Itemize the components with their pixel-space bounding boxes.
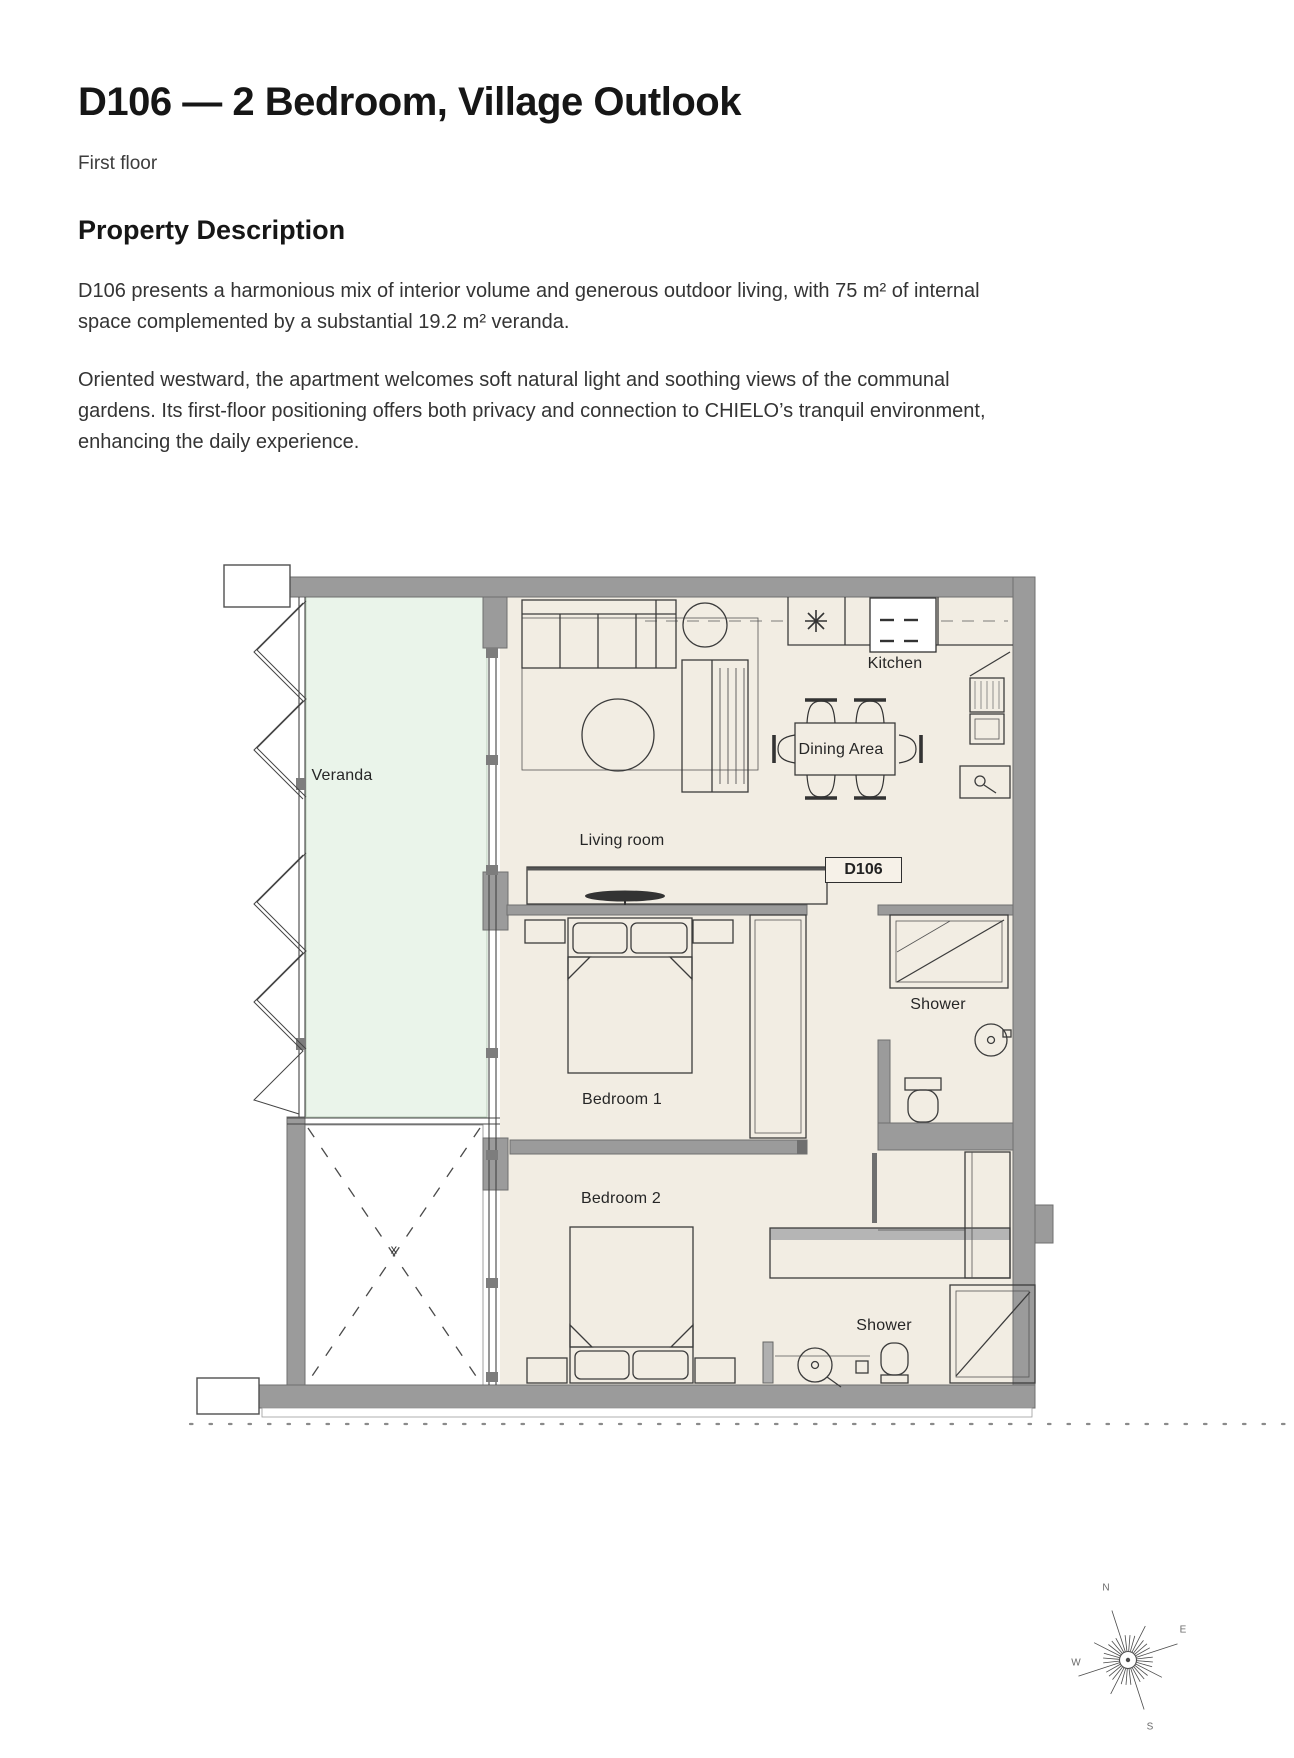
compass-rose — [1079, 1611, 1178, 1710]
floor-plan-drawing — [0, 0, 1294, 1758]
structural-columns — [197, 565, 290, 1414]
compass-n-label: N — [1102, 1583, 1109, 1594]
room-label-dining-area: Dining Area — [799, 741, 884, 759]
room-label-bedroom-2: Bedroom 2 — [581, 1190, 661, 1208]
page: D106 — 2 Bedroom, Village Outlook First … — [0, 0, 1294, 1758]
compass-s-label: S — [1147, 1722, 1154, 1733]
room-label-shower-2: Shower — [856, 1317, 911, 1335]
room-label-kitchen: Kitchen — [868, 655, 923, 673]
tv-icon — [585, 891, 665, 902]
stove-icon — [870, 598, 936, 652]
open-window-icon — [254, 601, 306, 1114]
floor-areas — [305, 597, 1013, 1385]
floor-plan: Veranda Living room Kitchen Dining Area … — [0, 0, 1294, 1758]
room-label-living-room: Living room — [580, 832, 665, 850]
unit-number-badge: D106 — [825, 857, 902, 883]
compass-w-label: W — [1071, 1658, 1080, 1669]
room-label-veranda: Veranda — [311, 767, 372, 785]
room-label-bedroom-1: Bedroom 1 — [582, 1091, 662, 1109]
void-x-marker: x — [391, 1242, 398, 1257]
sink-icon — [805, 610, 827, 632]
compass-e-label: E — [1180, 1625, 1187, 1636]
room-label-shower-1: Shower — [910, 996, 965, 1014]
